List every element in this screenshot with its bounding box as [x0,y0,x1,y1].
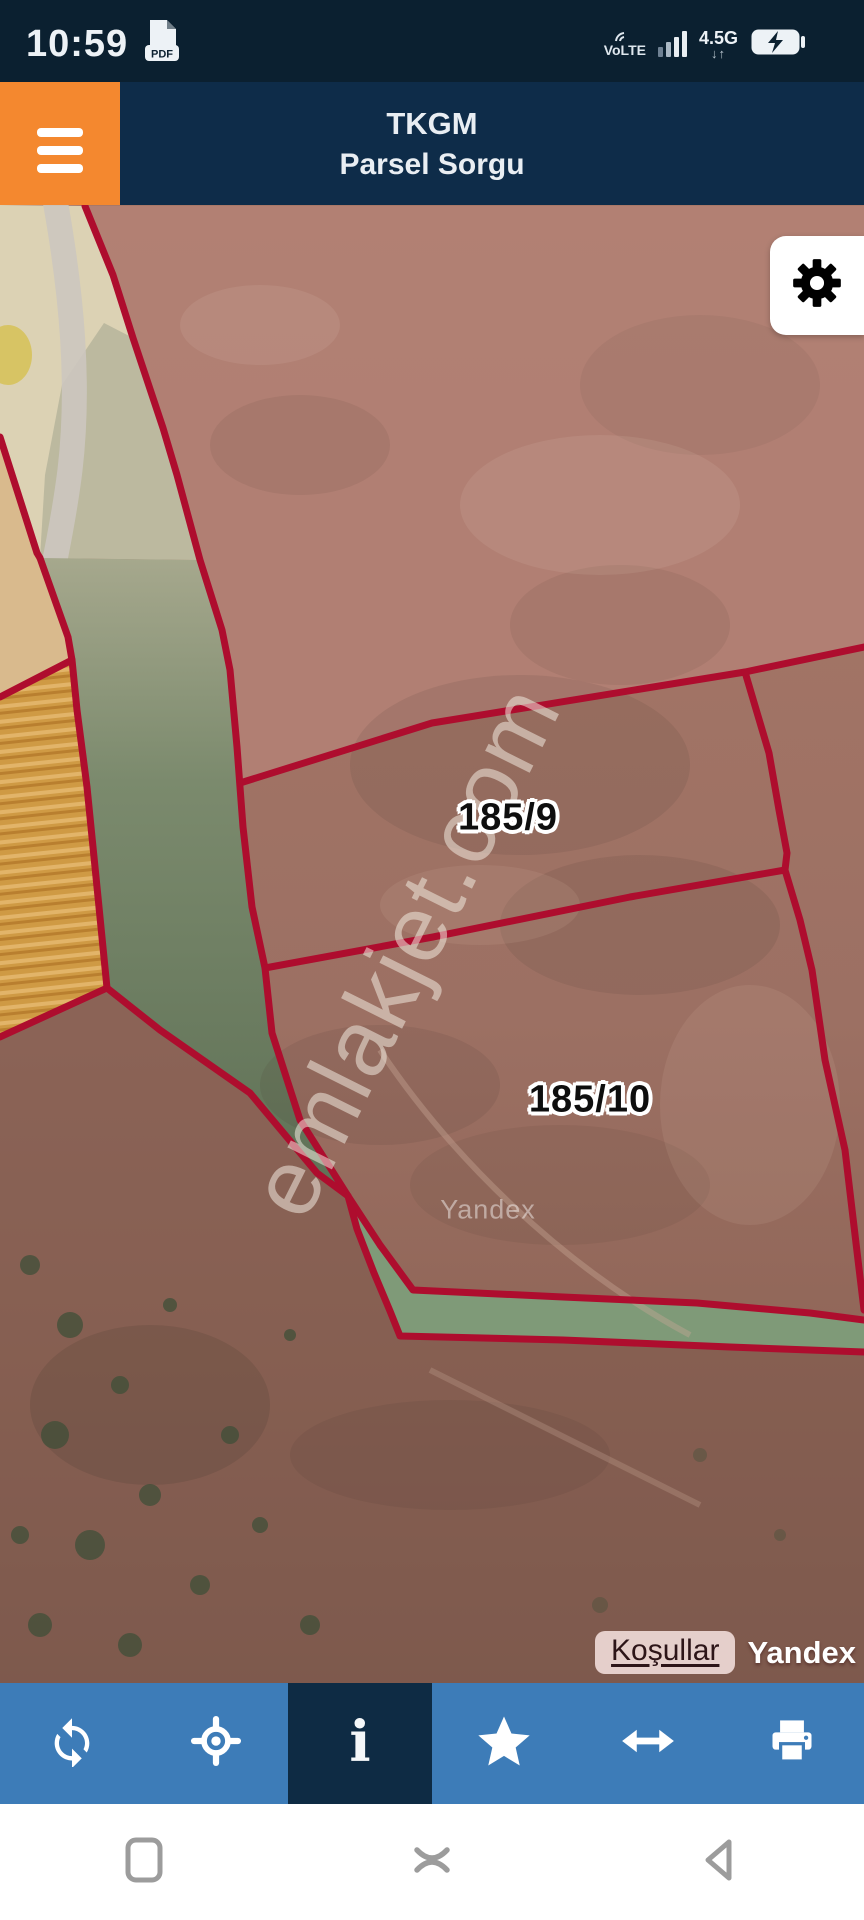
satellite-imagery [0,205,864,1683]
map-provider-watermark: Yandex [440,1195,536,1226]
parcel-label-185-10[interactable]: 185/10 [529,1079,651,1122]
status-bar: 10:59 PDF VoLTE [0,0,864,82]
favorite-button[interactable] [432,1683,576,1804]
android-navigation-bar [0,1804,864,1920]
home-gesture-icon [406,1836,458,1889]
satellite-map[interactable]: emlakjet.com 185/9 185/10 Yandex [0,205,864,1683]
parcel-label-185-9[interactable]: 185/9 [458,797,558,840]
map-toolbar: i [0,1683,864,1804]
star-icon [476,1713,532,1774]
volte-icon: VoLTE [604,32,646,57]
info-icon: i [349,1714,370,1770]
pdf-badge-text: PDF [151,48,173,60]
network-type-indicator: 4.5G ↓↑ [699,29,738,60]
refresh-icon [46,1715,98,1772]
refresh-button[interactable] [0,1683,144,1804]
clock: 10:59 [26,23,128,66]
printer-icon [766,1715,818,1772]
home-button[interactable] [288,1836,576,1889]
data-activity-arrows: ↓↑ [711,47,726,60]
locate-button[interactable] [144,1683,288,1804]
provider-attribution[interactable]: Yandex [747,1635,856,1671]
info-button[interactable]: i [288,1683,432,1804]
terms-link[interactable]: Koşullar [595,1631,735,1674]
recents-square-icon [121,1835,167,1890]
phone-screen: 10:59 PDF VoLTE [0,0,864,1920]
crosshair-locate-icon [191,1716,241,1771]
horizontal-arrows-icon [621,1721,675,1766]
app-title: TKGM [386,106,477,142]
page-title: Parsel Sorgu [339,148,524,182]
map-settings-button[interactable] [770,236,864,335]
menu-button[interactable] [0,82,120,205]
pdf-notification-icon: PDF [144,19,180,70]
back-triangle-icon [696,1835,744,1890]
recents-button[interactable] [0,1835,288,1890]
measure-button[interactable] [576,1683,720,1804]
map-attribution: Koşullar Yandex [595,1631,856,1674]
battery-charging-icon [750,28,806,61]
back-button[interactable] [576,1835,864,1890]
app-header: TKGM Parsel Sorgu [0,82,864,205]
gear-icon [791,257,843,314]
print-button[interactable] [720,1683,864,1804]
signal-strength-icon [658,31,687,57]
